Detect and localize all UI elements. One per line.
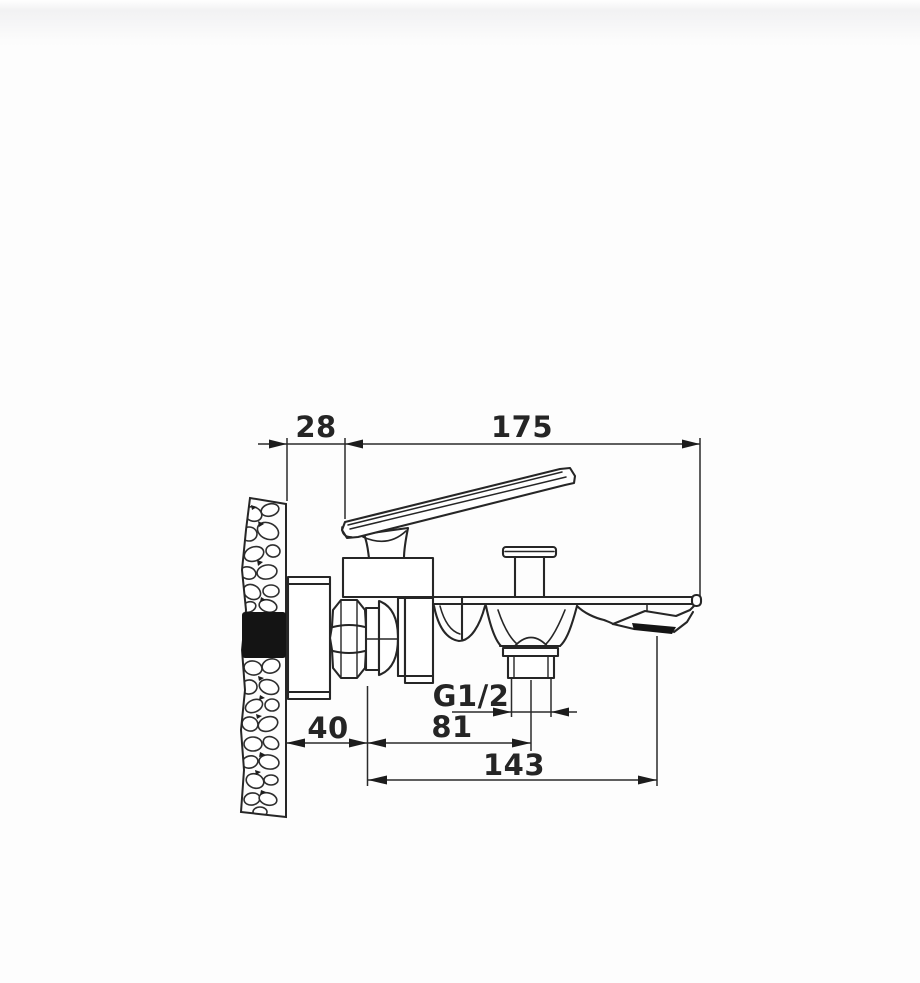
outlet-lip: [503, 648, 558, 656]
dim-label-40: 40: [307, 711, 348, 745]
spout-end-cap: [692, 595, 701, 606]
spout-tip: [613, 604, 694, 634]
pebble: [243, 660, 263, 677]
wall-section: [239, 498, 286, 817]
pebble: [265, 544, 281, 558]
pebble: [264, 775, 278, 785]
arrow: [512, 739, 531, 748]
spout-arch: [434, 606, 485, 641]
arrow: [269, 440, 287, 449]
wall-pipe-section: [242, 612, 286, 658]
mounting-nut: [330, 600, 368, 678]
spout-aerator: [632, 623, 676, 634]
pebble: [260, 502, 280, 518]
valve-connector: [366, 598, 405, 676]
wall-hatching: [239, 502, 282, 817]
pebble: [243, 792, 261, 807]
pebble: [243, 697, 264, 715]
arrow: [345, 440, 363, 449]
arrow: [286, 739, 305, 748]
page: 28 175 G1/2 40 81 143: [0, 0, 920, 983]
pebble: [244, 737, 262, 751]
pebble: [256, 563, 278, 580]
cartridge-block: [343, 558, 433, 597]
arrow: [551, 708, 569, 717]
dim-label-28: 28: [295, 410, 336, 444]
pebble: [242, 544, 266, 564]
handle-lever: [342, 468, 575, 538]
spout-underside: [577, 606, 613, 624]
dim-label-g12: G1/2: [433, 679, 510, 713]
pebble: [240, 715, 259, 733]
arrow: [368, 739, 387, 748]
pebble: [265, 699, 279, 711]
pebble: [257, 677, 281, 697]
pebble: [240, 679, 257, 694]
pebble: [261, 734, 281, 752]
arrow: [349, 739, 368, 748]
outlet-thread: [508, 656, 554, 678]
valve-barrel: [379, 601, 398, 675]
pebble: [244, 771, 266, 790]
arrow: [638, 776, 657, 785]
arrow: [682, 440, 700, 449]
pebble: [241, 600, 258, 614]
escutcheon-plate: [288, 577, 330, 699]
technical-drawing: 28 175 G1/2 40 81 143: [0, 0, 920, 983]
dim-label-143: 143: [483, 748, 545, 782]
pebble: [263, 585, 279, 597]
shower-outlet: [486, 606, 577, 678]
arrow: [368, 776, 387, 785]
pebble: [241, 527, 257, 541]
dim-label-81: 81: [431, 710, 472, 744]
diverter-knob: [503, 547, 556, 596]
pebble: [260, 657, 281, 675]
dim-label-175: 175: [491, 410, 553, 444]
faucet: [288, 468, 701, 699]
